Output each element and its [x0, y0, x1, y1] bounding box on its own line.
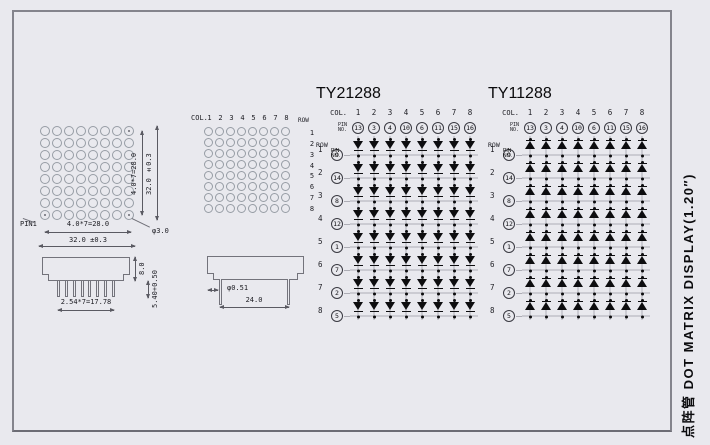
diode-triangle-icon: [637, 233, 647, 241]
diode-cell: [618, 297, 634, 320]
diode-cell: [554, 228, 570, 251]
diode-cell: [586, 228, 602, 251]
diode-cell: [538, 297, 554, 320]
led-dot: [281, 182, 290, 191]
schematic-title: TY11288: [488, 85, 650, 103]
diode-triangle-icon: [525, 210, 535, 218]
led-dot: [281, 171, 290, 180]
row-header: 67: [486, 251, 522, 274]
diode-cell: [366, 228, 382, 251]
diode-cathode-bar: [402, 311, 411, 313]
diode-cathode-bar: [402, 173, 411, 175]
diode-cathode-bar: [590, 209, 599, 211]
diode-cell: [430, 136, 446, 159]
dim-line-outer-horizontal: [39, 246, 135, 247]
diode-cathode-bar: [370, 150, 379, 152]
diode-triangle-icon: [637, 164, 647, 172]
diode-cathode-bar: [606, 255, 615, 257]
diode-cathode-bar: [354, 265, 363, 267]
led-dot: [248, 193, 257, 202]
led-dot: [52, 150, 62, 160]
diode-triangle-icon: [621, 210, 631, 218]
diode-cell: [414, 228, 430, 251]
led-dot: [248, 204, 257, 213]
led-dot: [64, 174, 74, 184]
diode-cathode-bar: [466, 173, 475, 175]
diode-cell: [366, 205, 382, 228]
diode-cell: [586, 274, 602, 297]
led-dot: [281, 149, 290, 158]
diode-cathode-bar: [542, 301, 551, 303]
diode-triangle-icon: [401, 279, 411, 287]
col-number: 2: [538, 107, 554, 120]
pin: [112, 281, 115, 297]
diode-cathode-bar: [590, 140, 599, 142]
diode-triangle-icon: [417, 187, 427, 195]
led-dot: [248, 127, 257, 136]
led-dot: [237, 149, 246, 158]
diode-cathode-bar: [574, 232, 583, 234]
led-dot: [64, 210, 74, 220]
diode-cathode-bar: [526, 278, 535, 280]
diode-triangle-icon: [433, 187, 443, 195]
led-dot: [281, 138, 290, 147]
led-dot: [259, 182, 268, 191]
pin: [57, 281, 60, 297]
diode-cell: [602, 159, 618, 182]
diode-cell: [350, 228, 366, 251]
diode-cathode-bar: [638, 255, 647, 257]
pin: [88, 281, 91, 297]
diode-cathode-bar: [418, 173, 427, 175]
led-dot: [100, 126, 110, 136]
diode-triangle-icon: [573, 302, 583, 310]
diode-triangle-icon: [525, 141, 535, 149]
diode-cathode-bar: [434, 219, 443, 221]
diode-cell: [554, 159, 570, 182]
diode-cathode-bar: [418, 196, 427, 198]
diode-cell: [618, 136, 634, 159]
diode-cell: [446, 228, 462, 251]
diode-cell: [618, 274, 634, 297]
diode-cell: [602, 251, 618, 274]
diode-cell: [586, 251, 602, 274]
col-number: 1: [350, 107, 366, 120]
col-number: 7: [446, 107, 462, 120]
led-dot: [248, 182, 257, 191]
pin: [104, 281, 107, 297]
diode-cell: [462, 251, 478, 274]
diode-triangle-icon: [637, 187, 647, 195]
diode-triangle-icon: [369, 187, 379, 195]
index-number: 5: [248, 114, 259, 122]
diode-triangle-icon: [573, 210, 583, 218]
diode-cell: [618, 182, 634, 205]
diode-cathode-bar: [558, 140, 567, 142]
diode-cell: [414, 182, 430, 205]
diode-cathode-bar: [558, 255, 567, 257]
diode-triangle-icon: [557, 233, 567, 241]
diode-cathode-bar: [386, 196, 395, 198]
col-number: 3: [554, 107, 570, 120]
diode-cathode-bar: [370, 173, 379, 175]
diode-cell: [366, 182, 382, 205]
diode-triangle-icon: [385, 141, 395, 149]
led-dot: [88, 126, 98, 136]
diode-cathode-bar: [606, 209, 615, 211]
led-dot: [270, 182, 279, 191]
led-dot: [40, 162, 50, 172]
diode-cathode-bar: [354, 242, 363, 244]
diode-triangle-icon: [401, 141, 411, 149]
diode-cathode-bar: [450, 242, 459, 244]
diode-cathode-bar: [542, 209, 551, 211]
row-header: 38: [486, 182, 522, 205]
diode-cell: [398, 205, 414, 228]
led-dot: [270, 138, 279, 147]
diode-cathode-bar: [526, 163, 535, 165]
col-number: 8: [462, 107, 478, 120]
diode-triangle-icon: [557, 302, 567, 310]
diode-cathode-bar: [590, 278, 599, 280]
pin: [73, 281, 76, 297]
led-dot: [248, 138, 257, 147]
diode-triangle-icon: [353, 164, 363, 172]
col-pin-number: 4: [384, 122, 396, 134]
diode-cathode-bar: [370, 219, 379, 221]
row-header: 38: [314, 182, 350, 205]
diode-triangle-icon: [541, 279, 551, 287]
led-dot: [248, 160, 257, 169]
diode-cell: [414, 159, 430, 182]
row-number: 8: [318, 306, 323, 315]
led-dot: [237, 171, 246, 180]
dim-line-inner-horizontal: [45, 232, 131, 233]
diode-cathode-bar: [622, 301, 631, 303]
diode-cell: [554, 297, 570, 320]
row-pin-number: 5: [331, 310, 343, 322]
front-view-led-grid: [40, 126, 134, 220]
led-dot: [248, 171, 257, 180]
diode-cell: [586, 182, 602, 205]
diode-cathode-bar: [354, 311, 363, 313]
diode-cathode-bar: [370, 196, 379, 198]
diode-cathode-bar: [370, 265, 379, 267]
col-pin-number: 15: [620, 122, 632, 134]
col-number: 4: [570, 107, 586, 120]
side-title: 点阵管 DOT MATRIX DISPLAY(1.20″): [678, 146, 697, 438]
pin: [65, 281, 68, 297]
pin: [81, 281, 84, 297]
schematic-grid: COL.12345678PIN NO.133410611151619214384…: [314, 107, 478, 320]
diode-triangle-icon: [541, 302, 551, 310]
led-dot: [52, 174, 62, 184]
row-header: 51: [314, 228, 350, 251]
led-dot: [40, 210, 50, 220]
diode-cathode-bar: [418, 150, 427, 152]
diode-cathode-bar: [386, 311, 395, 313]
diode-triangle-icon: [401, 164, 411, 172]
diode-triangle-icon: [525, 164, 535, 172]
diode-triangle-icon: [557, 279, 567, 287]
diode-cathode-bar: [386, 173, 395, 175]
diode-cell: [446, 205, 462, 228]
diode-cathode-bar: [590, 301, 599, 303]
body-notch-right: [297, 273, 304, 280]
led-dot: [40, 126, 50, 136]
diode-cell: [414, 274, 430, 297]
led-dot: [215, 138, 224, 147]
diode-cell: [398, 251, 414, 274]
row-number: 7: [318, 283, 323, 292]
diode-cathode-bar: [526, 186, 535, 188]
col-number: 2: [366, 107, 382, 120]
led-dot: [76, 150, 86, 160]
diode-cathode-bar: [574, 140, 583, 142]
index-number: 4: [237, 114, 248, 122]
dim-line-outer-vertical: [157, 126, 158, 220]
col-pin-number: 15: [448, 122, 460, 134]
row-header: 85: [314, 297, 350, 320]
diode-cathode-bar: [466, 242, 475, 244]
diode-triangle-icon: [541, 210, 551, 218]
back-view-led-grid: [204, 127, 290, 213]
diode-cell: [618, 251, 634, 274]
diode-cathode-bar: [542, 163, 551, 165]
diode-triangle-icon: [605, 256, 615, 264]
col-pin-number: 3: [540, 122, 552, 134]
diode-triangle-icon: [449, 233, 459, 241]
led-dot: [76, 198, 86, 208]
diode-cell: [398, 228, 414, 251]
col-number: 3: [382, 107, 398, 120]
diode-cathode-bar: [386, 150, 395, 152]
diode-triangle-icon: [573, 279, 583, 287]
diode-triangle-icon: [605, 233, 615, 241]
led-dot: [237, 138, 246, 147]
diode-cathode-bar: [402, 196, 411, 198]
led-dot: [270, 193, 279, 202]
diode-triangle-icon: [589, 164, 599, 172]
diode-triangle-icon: [621, 141, 631, 149]
diode-triangle-icon: [621, 233, 631, 241]
diode-cell: [586, 205, 602, 228]
diode-triangle-icon: [353, 187, 363, 195]
diode-triangle-icon: [433, 302, 443, 310]
diode-triangle-icon: [621, 256, 631, 264]
diode-cathode-bar: [542, 140, 551, 142]
led-dot: [64, 162, 74, 172]
led-dot: [112, 150, 122, 160]
led-dot: [76, 210, 86, 220]
diode-cathode-bar: [542, 255, 551, 257]
led-dot: [88, 138, 98, 148]
led-dot: [88, 174, 98, 184]
diode-triangle-icon: [525, 233, 535, 241]
led-dot: [40, 198, 50, 208]
pin-no-label: PIN NO.: [503, 149, 512, 159]
diode-triangle-icon: [589, 233, 599, 241]
diode-triangle-icon: [401, 256, 411, 264]
diode-cell: [398, 274, 414, 297]
diode-cathode-bar: [370, 288, 379, 290]
diode-cathode-bar: [558, 186, 567, 188]
led-dot: [226, 182, 235, 191]
diode-triangle-icon: [605, 164, 615, 172]
diode-cell: [538, 136, 554, 159]
led-dot: [215, 204, 224, 213]
diode-cathode-bar: [434, 311, 443, 313]
col-number: 7: [618, 107, 634, 120]
diode-triangle-icon: [401, 302, 411, 310]
diode-cell: [462, 228, 478, 251]
diode-cell: [382, 228, 398, 251]
diode-cell: [634, 205, 650, 228]
index-number: 3: [226, 114, 237, 122]
diode-cell: [538, 159, 554, 182]
datasheet-page: 4.0*7=28.0 32.0 ±0.3 4.0*7=28.0 32.0 ±0.…: [0, 0, 710, 445]
led-dot: [76, 162, 86, 172]
col-number: 4: [398, 107, 414, 120]
led-dot: [100, 162, 110, 172]
diode-cathode-bar: [558, 209, 567, 211]
diode-cell: [414, 136, 430, 159]
row-number: 3: [490, 191, 495, 200]
diode-cathode-bar: [526, 232, 535, 234]
led-dot: [270, 204, 279, 213]
diode-cathode-bar: [622, 278, 631, 280]
diode-triangle-icon: [637, 302, 647, 310]
diode-cell: [398, 297, 414, 320]
led-dot: [259, 171, 268, 180]
led-dot: [270, 171, 279, 180]
diode-cell: [538, 251, 554, 274]
led-dot: [64, 150, 74, 160]
diode-cell: [618, 228, 634, 251]
diode-triangle-icon: [449, 164, 459, 172]
diode-triangle-icon: [573, 256, 583, 264]
led-dot: [270, 160, 279, 169]
diode-triangle-icon: [433, 233, 443, 241]
diode-triangle-icon: [525, 279, 535, 287]
led-dot: [52, 138, 62, 148]
row-number: 4: [318, 214, 323, 223]
col-label: COL.: [486, 107, 522, 120]
diode-triangle-icon: [433, 210, 443, 218]
col-pin-number: 16: [636, 122, 648, 134]
diode-cell: [634, 297, 650, 320]
diode-cathode-bar: [622, 255, 631, 257]
diode-triangle-icon: [385, 279, 395, 287]
diode-triangle-icon: [541, 233, 551, 241]
row-number: 6: [490, 260, 495, 269]
diode-triangle-icon: [465, 279, 475, 287]
diode-triangle-icon: [605, 210, 615, 218]
diode-cathode-bar: [606, 232, 615, 234]
diode-cathode-bar: [590, 255, 599, 257]
row-number: 6: [318, 260, 323, 269]
pin-no-label: PIN NO.: [314, 120, 350, 136]
led-dot: [259, 149, 268, 158]
diode-cathode-bar: [574, 163, 583, 165]
col-pin-number: 6: [588, 122, 600, 134]
diode-triangle-icon: [353, 256, 363, 264]
diode-cathode-bar: [434, 196, 443, 198]
diode-cell: [570, 251, 586, 274]
diode-cell: [634, 159, 650, 182]
diode-triangle-icon: [417, 210, 427, 218]
diode-triangle-icon: [637, 141, 647, 149]
diode-triangle-icon: [465, 141, 475, 149]
row-header: 412: [314, 205, 350, 228]
diode-cell: [446, 182, 462, 205]
diode-triangle-icon: [369, 233, 379, 241]
diode-cathode-bar: [622, 209, 631, 211]
body-notch-right: [123, 274, 130, 281]
diode-cell: [462, 205, 478, 228]
dim-label-pin-span: 24.0: [230, 296, 278, 304]
diode-cell: [446, 274, 462, 297]
row-header: 51: [486, 228, 522, 251]
diode-cell: [538, 182, 554, 205]
led-dot: [204, 171, 213, 180]
diode-triangle-icon: [465, 233, 475, 241]
diode-triangle-icon: [589, 256, 599, 264]
mid-side-view-body: [207, 256, 304, 280]
dim-label-inner-horizontal: 4.0*7=28.0: [56, 220, 120, 228]
diode-cell: [382, 182, 398, 205]
led-dot: [259, 138, 268, 147]
dim-label-outer-vertical: 32.0 ±0.3: [145, 136, 155, 212]
col-pin-number: 13: [524, 122, 536, 134]
led-dot: [52, 186, 62, 196]
hole-diameter-label: φ3.0: [152, 227, 169, 235]
diode-cell: [522, 159, 538, 182]
diode-cell: [570, 205, 586, 228]
diode-cell: [522, 205, 538, 228]
diode-triangle-icon: [353, 302, 363, 310]
diode-triangle-icon: [525, 302, 535, 310]
diode-cell: [602, 205, 618, 228]
diode-triangle-icon: [401, 210, 411, 218]
diode-cell: [602, 297, 618, 320]
diode-triangle-icon: [525, 256, 535, 264]
col-pin-number: 10: [572, 122, 584, 134]
diode-cell: [522, 274, 538, 297]
row-label: ROW: [316, 141, 328, 149]
row-number: 5: [490, 237, 495, 246]
led-dot: [248, 149, 257, 158]
led-dot: [76, 126, 86, 136]
diode-cathode-bar: [606, 301, 615, 303]
diode-cell: [570, 159, 586, 182]
led-dot: [112, 198, 122, 208]
led-dot: [259, 204, 268, 213]
led-dot: [40, 138, 50, 148]
led-dot: [226, 149, 235, 158]
diode-cell: [522, 251, 538, 274]
led-dot: [281, 127, 290, 136]
diode-triangle-icon: [369, 279, 379, 287]
diode-cell: [570, 136, 586, 159]
diode-cell: [554, 182, 570, 205]
led-dot: [226, 127, 235, 136]
row-number: 7: [490, 283, 495, 292]
led-dot: [259, 160, 268, 169]
diode-cathode-bar: [574, 301, 583, 303]
diode-cell: [382, 159, 398, 182]
diode-cell: [634, 136, 650, 159]
